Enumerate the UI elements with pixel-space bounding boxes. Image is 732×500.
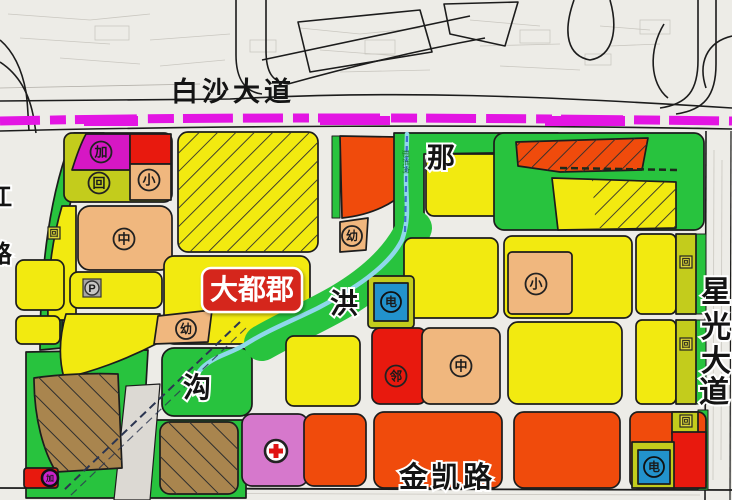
resettlement-strip-2-badge: 回 bbox=[680, 338, 692, 350]
zone-yellow-mid-left bbox=[286, 336, 360, 406]
zone-yellow-e1 bbox=[636, 234, 676, 314]
zone-yellow-center-3 bbox=[508, 322, 622, 404]
zone-red-se bbox=[672, 432, 706, 488]
gas-station-2-badge-char: 加 bbox=[45, 473, 54, 483]
road-label-xingguang-3: 大 bbox=[701, 345, 731, 378]
resettlement-strip-3-badge: 回 bbox=[680, 415, 692, 427]
project-label-text: 大都郡 bbox=[210, 274, 294, 305]
zone-yellow-e2 bbox=[636, 320, 676, 404]
zone-orange-b1 bbox=[304, 414, 366, 486]
zone-yellow-a bbox=[16, 260, 64, 310]
zone-yellow-d bbox=[16, 316, 60, 344]
stream-label-na: 那 bbox=[427, 142, 455, 173]
resettlement-strip-2-char: 回 bbox=[682, 339, 691, 349]
stream-label-gou: 沟 bbox=[183, 372, 211, 403]
zone-green-edge-orange bbox=[332, 136, 340, 218]
middle-school-badge-char: 中 bbox=[117, 232, 130, 247]
metro-dashed-line bbox=[0, 116, 732, 126]
hospital-cross-icon bbox=[265, 440, 287, 462]
resettlement-strip-3-char: 回 bbox=[682, 416, 691, 426]
resettlement-strip-1-char: 回 bbox=[682, 257, 691, 267]
resettlement-small-badge: 回 bbox=[48, 227, 60, 239]
project-label: 大都郡 bbox=[202, 268, 302, 312]
planning-map: 加 回 小 中 回 P 幼 幼 bbox=[0, 0, 732, 500]
gas-station-badge-char: 加 bbox=[93, 145, 107, 160]
kindergarten-badge-char: 幼 bbox=[180, 321, 192, 336]
substation-badge-char: 电 bbox=[385, 294, 397, 309]
zone-orange-b2 bbox=[514, 412, 620, 488]
middle-school-2-badge-char: 中 bbox=[454, 359, 467, 374]
substation-2-badge-char: 电 bbox=[648, 459, 660, 474]
parking-badge: P bbox=[83, 279, 101, 297]
zone-olive-strip-e2 bbox=[676, 320, 696, 404]
zone-yellow-center-1 bbox=[404, 238, 498, 318]
primary-school-2-badge-char: 小 bbox=[529, 277, 542, 292]
zone-red-commercial-nw bbox=[130, 134, 171, 164]
primary-school-badge-char: 小 bbox=[142, 173, 155, 188]
zone-olive-strip-e1 bbox=[676, 234, 696, 314]
stream-label-hong: 洪 bbox=[330, 288, 358, 319]
zone-yellow-hatched-ne-hatch bbox=[592, 180, 676, 228]
zone-brown-village-center-hatch bbox=[160, 422, 238, 494]
resettlement-strip-1-badge: 回 bbox=[680, 256, 692, 268]
resettlement-small-badge-char: 回 bbox=[50, 228, 59, 238]
road-label-left-partial-2: 路 bbox=[0, 240, 13, 268]
parking-badge-char: P bbox=[88, 283, 95, 295]
stream-corridor-tiny-label: 那洪沟 bbox=[401, 150, 412, 174]
road-label-jinkai: 金凯路 bbox=[398, 460, 495, 494]
zone-orange-hatched-ne-hatch bbox=[516, 138, 648, 172]
road-label-xingguang-1: 星 bbox=[701, 276, 731, 309]
zone-yellow-hatched-main-hatch bbox=[178, 132, 318, 252]
road-label-xingguang-4: 道 bbox=[699, 376, 729, 409]
resettlement-badge-char: 回 bbox=[92, 176, 105, 191]
neighborhood-center-badge-char: 邻 bbox=[389, 369, 403, 384]
road-label-left-partial-1: 江 bbox=[0, 184, 12, 211]
kindergarten-2-badge-char: 幼 bbox=[346, 228, 358, 243]
planning-map-canvas: 加 回 小 中 回 P 幼 幼 bbox=[0, 0, 732, 500]
gas-station-2-badge: 加 bbox=[42, 470, 58, 486]
road-label-baisha: 白沙大道 bbox=[171, 76, 295, 107]
road-label-xingguang-2: 光 bbox=[701, 311, 731, 344]
